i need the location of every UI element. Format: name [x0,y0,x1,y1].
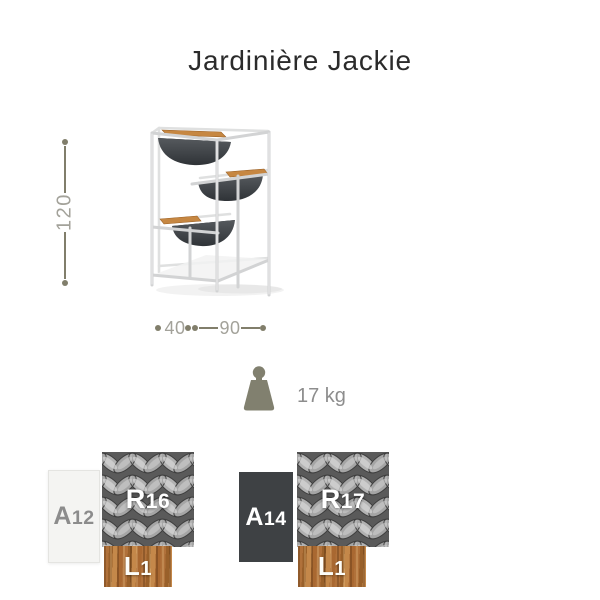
swatch-label: R16 [126,486,170,513]
weight-value: 17 kg [297,385,346,408]
planter-bowl-middle [198,169,268,201]
finish-rope-swatch-r17[interactable]: R17 [297,452,389,547]
swatch-label: L1 [124,553,152,579]
dimension-endpoint-dot [62,139,68,145]
weight-icon [241,365,277,413]
dimension-endpoint-dot [155,325,161,331]
swatch-label: R17 [321,486,365,513]
dimension-endpoint-dot [260,325,266,331]
finish-frame-swatch-a12[interactable]: A12 [48,470,100,563]
dimension-line [64,146,66,193]
swatch-label: A12 [53,504,94,529]
dimension-endpoint-dot [185,325,191,331]
finish-wood-swatch-l1[interactable]: L1 [298,546,366,587]
finish-rope-swatch-r16[interactable]: R16 [102,452,194,547]
dimension-endpoint-dot [62,280,68,286]
finish-frame-swatch-a14[interactable]: A14 [239,472,293,562]
height-value: 120 [54,193,77,231]
finish-wood-swatch-l1[interactable]: L1 [104,546,172,587]
dimension-line [199,327,218,329]
dimension-line [64,232,66,279]
page-title: Jardinière Jackie [0,45,600,77]
floor-shadow [156,284,284,296]
swatch-label: L1 [318,553,346,579]
dimension-line [241,327,260,329]
swatch-label: A14 [245,505,286,530]
product-image [140,106,315,301]
width-value: 90 [217,318,243,339]
product-sheet-page: Jardinière Jackie [0,0,600,600]
dimension-endpoint-dot [192,325,198,331]
